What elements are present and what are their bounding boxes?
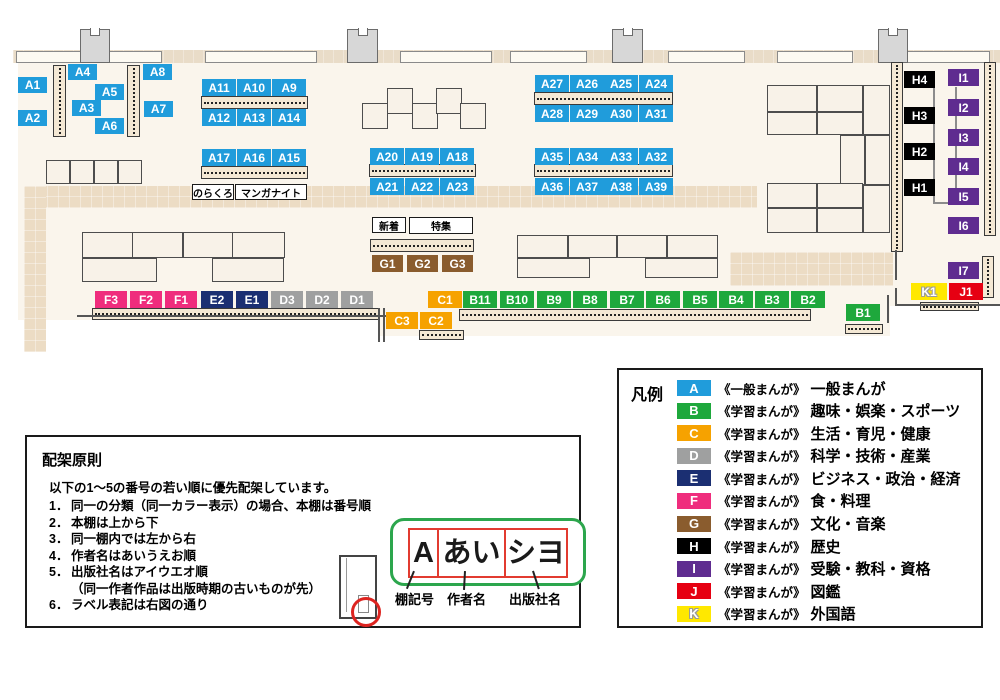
shelf-label-A39: A39 xyxy=(639,178,673,195)
shelf-label-A31: A31 xyxy=(639,105,673,122)
table xyxy=(362,103,388,129)
map-tag: 新着 xyxy=(372,217,406,233)
shelf-label-A1: A1 xyxy=(18,77,47,93)
shelf-label-A17: A17 xyxy=(202,149,236,166)
shelf-label-A26: A26 xyxy=(570,75,604,92)
table xyxy=(667,235,718,258)
principles-item: 1．同一の分類（同一カラー表示）の場合、本棚は番号順 xyxy=(49,498,394,515)
legend-item-list: A《一般まんが》一般まんがB《学習まんが》趣味・娯楽・スポーツC《学習まんが》生… xyxy=(677,380,961,629)
table xyxy=(118,160,142,184)
shelf-label-A22: A22 xyxy=(405,178,439,195)
shelf-label-B5: B5 xyxy=(683,291,717,308)
wall-line xyxy=(887,295,889,323)
legend-item-D: D《学習まんが》科学・技術・産業 xyxy=(677,448,961,464)
principles-item-number: 1． xyxy=(49,498,71,515)
bookshelf xyxy=(370,239,474,252)
bookshelf xyxy=(534,92,673,105)
shelf-label-A29: A29 xyxy=(570,105,604,122)
table xyxy=(82,232,133,258)
wall-window xyxy=(906,51,990,63)
wall-window xyxy=(777,51,853,63)
principles-item-number: 2． xyxy=(49,515,71,532)
shelf-label-A4: A4 xyxy=(68,64,97,80)
shelf-label-A2: A2 xyxy=(18,110,47,126)
principles-item-text: 本棚は上から下 xyxy=(71,515,159,532)
bookshelf xyxy=(369,164,476,177)
shelf-label-A12: A12 xyxy=(202,109,236,126)
bookshelf xyxy=(845,324,883,334)
label-example-author: あい xyxy=(437,528,506,578)
legend-category: 一般まんが xyxy=(811,378,886,399)
principles-item-number: 6． xyxy=(49,597,71,614)
legend-item-H: H《学習まんが》歴史 xyxy=(677,538,961,554)
legend-chip-J: J xyxy=(677,583,711,599)
shelf-label-J1: J1 xyxy=(949,283,983,300)
floor-map-page: A1A2A3A4A5A6A7A8A11A10A9A12A13A14A17A16A… xyxy=(0,0,1000,700)
pillar-notch xyxy=(623,28,633,36)
legend-category: ビジネス・政治・経済 xyxy=(811,468,961,489)
callout-author: 作者名 xyxy=(447,589,486,608)
shelf-label-A30: A30 xyxy=(604,105,638,122)
wall-window xyxy=(510,51,587,63)
shelf-label-A19: A19 xyxy=(405,148,439,165)
principles-item-text: 出版社名はアイウエオ順 xyxy=(71,564,208,581)
shelf-label-B10: B10 xyxy=(500,291,534,308)
table xyxy=(863,85,890,135)
shelf-label-B1: B1 xyxy=(846,304,880,321)
shelf-label-B7: B7 xyxy=(610,291,644,308)
shelf-label-I1: I1 xyxy=(948,69,979,86)
table xyxy=(387,88,413,114)
shelf-label-A25: A25 xyxy=(604,75,638,92)
callout-shelf-code: 棚記号 xyxy=(395,589,434,608)
principles-item: 2．本棚は上から下 xyxy=(49,515,394,532)
principles-item: 3．同一棚内では左から右 xyxy=(49,531,394,548)
legend-category: 文化・音楽 xyxy=(811,513,886,534)
shelf-label-A7: A7 xyxy=(144,101,173,117)
principles-title: 配架原則 xyxy=(42,449,102,470)
legend-title: 凡例 xyxy=(631,381,663,405)
shelf-label-A24: A24 xyxy=(639,75,673,92)
shelf-label-B11: B11 xyxy=(463,291,497,308)
legend-category: 図鑑 xyxy=(811,581,841,602)
table xyxy=(183,232,233,258)
shelf-label-D2: D2 xyxy=(306,291,338,308)
legend-type: 《学習まんが》 xyxy=(718,559,806,578)
shelf-label-A10: A10 xyxy=(237,79,271,96)
walkway xyxy=(24,186,46,352)
pillar-notch xyxy=(358,28,368,36)
table xyxy=(817,112,863,135)
principles-item-number: 3． xyxy=(49,531,71,548)
wall-window xyxy=(205,51,317,63)
bookshelf xyxy=(891,62,903,252)
legend-type: 《学習まんが》 xyxy=(718,514,806,533)
shelf-label-D3: D3 xyxy=(271,291,303,308)
shelf-label-A15: A15 xyxy=(272,149,306,166)
legend-item-F: F《学習まんが》食・料理 xyxy=(677,493,961,509)
shelf-label-C3: C3 xyxy=(386,312,418,329)
bookshelf xyxy=(201,166,308,179)
wall-line xyxy=(895,250,897,280)
shelf-label-A35: A35 xyxy=(535,148,569,165)
legend-chip-C: C xyxy=(677,425,711,441)
shelf-label-I4: I4 xyxy=(948,158,979,175)
shelf-label-A3: A3 xyxy=(72,100,101,116)
principles-intro: 以下の1～5の番号の若い順に優先配架しています。 xyxy=(49,477,336,496)
shelf-label-B2: B2 xyxy=(791,291,825,308)
legend-item-C: C《学習まんが》生活・育児・健康 xyxy=(677,425,961,441)
legend-chip-A: A xyxy=(677,380,711,396)
wall-line xyxy=(378,308,380,342)
shelf-label-B3: B3 xyxy=(755,291,789,308)
legend-category: 食・料理 xyxy=(811,490,871,511)
bookshelf xyxy=(53,65,66,137)
table xyxy=(767,112,817,135)
legend-type: 《学習まんが》 xyxy=(718,491,806,510)
legend-category: 趣味・娯楽・スポーツ xyxy=(811,400,961,421)
shelf-label-A33: A33 xyxy=(604,148,638,165)
shelf-label-A16: A16 xyxy=(237,149,271,166)
pillar-notch xyxy=(90,28,100,36)
legend-chip-E: E xyxy=(677,470,711,486)
table xyxy=(817,183,863,208)
bookshelf xyxy=(984,62,996,236)
shelf-label-G3: G3 xyxy=(442,255,473,272)
label-example-publisher: シヨ xyxy=(504,528,568,578)
principles-item-text: 同一棚内では左から右 xyxy=(71,531,196,548)
shelf-label-A5: A5 xyxy=(95,84,124,100)
legend-category: 科学・技術・産業 xyxy=(811,445,931,466)
table xyxy=(817,208,863,233)
table xyxy=(767,85,817,112)
table xyxy=(865,135,890,185)
principles-item-number: 4． xyxy=(49,548,71,565)
principles-item-text: 作者名はあいうえお順 xyxy=(71,548,196,565)
map-tag: マンガナイト xyxy=(235,184,307,200)
shelf-label-F2: F2 xyxy=(130,291,162,308)
legend-chip-D: D xyxy=(677,448,711,464)
bookshelf xyxy=(127,65,140,137)
shelf-label-I6: I6 xyxy=(948,217,979,234)
table xyxy=(817,85,863,112)
table xyxy=(767,208,817,233)
shelf-label-A11: A11 xyxy=(202,79,236,96)
shelf-label-A27: A27 xyxy=(535,75,569,92)
shelf-label-A28: A28 xyxy=(535,105,569,122)
shelf-label-A14: A14 xyxy=(272,109,306,126)
legend-item-I: I《学習まんが》受験・教科・資格 xyxy=(677,561,961,577)
book-spine xyxy=(343,558,347,612)
bookshelf xyxy=(982,256,994,298)
map-tag: 特集 xyxy=(409,217,473,234)
shelf-label-G2: G2 xyxy=(407,255,438,272)
table xyxy=(46,160,70,184)
shelf-label-H1: H1 xyxy=(904,179,935,196)
legend-category: 受験・教科・資格 xyxy=(811,558,931,579)
shelf-label-A20: A20 xyxy=(370,148,404,165)
legend-item-K: K《学習まんが》外国語 xyxy=(677,606,961,622)
legend-chip-B: B xyxy=(677,403,711,419)
shelf-label-A32: A32 xyxy=(639,148,673,165)
table xyxy=(517,235,568,258)
table xyxy=(212,258,284,282)
principles-item-text: 同一の分類（同一カラー表示）の場合、本棚は番号順 xyxy=(71,498,371,515)
wall-line xyxy=(897,304,1000,306)
shelf-label-A34: A34 xyxy=(570,148,604,165)
shelf-label-H2: H2 xyxy=(904,143,935,160)
table xyxy=(840,135,865,185)
bookshelf xyxy=(534,164,673,177)
shelf-label-D1: D1 xyxy=(341,291,373,308)
principles-item-number: 5． xyxy=(49,564,71,581)
legend-category: 歴史 xyxy=(811,536,841,557)
shelf-label-F1: F1 xyxy=(165,291,197,308)
table xyxy=(94,160,118,184)
shelf-label-B9: B9 xyxy=(537,291,571,308)
bookshelf xyxy=(459,309,811,321)
pillar-notch xyxy=(888,28,898,36)
shelf-label-A8: A8 xyxy=(143,64,172,80)
legend-category: 生活・育児・健康 xyxy=(811,423,931,444)
shelf-label-C2: C2 xyxy=(420,312,452,329)
wall-line xyxy=(383,308,385,342)
legend-chip-G: G xyxy=(677,516,711,532)
shelf-label-K1: K1 xyxy=(911,283,947,300)
table xyxy=(517,258,590,278)
legend-category: 外国語 xyxy=(811,603,856,624)
shelf-label-B6: B6 xyxy=(646,291,680,308)
shelf-label-I5: I5 xyxy=(948,188,979,205)
legend-chip-F: F xyxy=(677,493,711,509)
shelf-label-H4: H4 xyxy=(904,71,935,88)
shelf-label-C1: C1 xyxy=(428,291,462,308)
shelf-label-I2: I2 xyxy=(948,99,979,116)
legend-chip-I: I xyxy=(677,561,711,577)
principles-item-text: ラベル表記は右図の通り xyxy=(71,597,209,614)
shelf-label-A38: A38 xyxy=(604,178,638,195)
shelf-label-H3: H3 xyxy=(904,107,935,124)
shelf-label-B4: B4 xyxy=(719,291,753,308)
shelf-label-A21: A21 xyxy=(370,178,404,195)
shelf-label-A13: A13 xyxy=(237,109,271,126)
shelf-label-A6: A6 xyxy=(95,118,124,134)
wall-line xyxy=(77,315,388,317)
legend-type: 《学習まんが》 xyxy=(718,446,806,465)
table xyxy=(132,232,183,258)
legend-chip-K: K xyxy=(677,606,711,622)
legend-item-G: G《学習まんが》文化・音楽 xyxy=(677,516,961,532)
map-tag: のらくろ xyxy=(192,184,234,200)
shelf-label-A37: A37 xyxy=(570,178,604,195)
shelf-label-F3: F3 xyxy=(95,291,127,308)
legend-item-B: B《学習まんが》趣味・娯楽・スポーツ xyxy=(677,403,961,419)
legend-box: 凡例 A《一般まんが》一般まんがB《学習まんが》趣味・娯楽・スポーツC《学習まん… xyxy=(617,368,983,628)
shelf-label-I3: I3 xyxy=(948,129,979,146)
label-highlight-circle xyxy=(351,597,381,627)
shelf-label-G1: G1 xyxy=(372,255,403,272)
table xyxy=(232,232,285,258)
shelf-label-A18: A18 xyxy=(440,148,474,165)
shelf-label-A36: A36 xyxy=(535,178,569,195)
table xyxy=(412,103,438,129)
table xyxy=(70,160,94,184)
wall-window xyxy=(400,51,492,63)
label-example-frame: A あい シヨ xyxy=(390,518,586,586)
table xyxy=(645,258,718,278)
legend-item-A: A《一般まんが》一般まんが xyxy=(677,380,961,396)
legend-type: 《学習まんが》 xyxy=(718,537,806,556)
callout-publisher: 出版社名 xyxy=(509,589,561,608)
table xyxy=(617,235,667,258)
table xyxy=(767,183,817,208)
legend-type: 《学習まんが》 xyxy=(718,401,806,420)
table xyxy=(82,258,157,282)
table xyxy=(460,103,486,129)
shelf-label-B8: B8 xyxy=(573,291,607,308)
wall-line xyxy=(895,288,897,306)
table xyxy=(568,235,617,258)
legend-item-J: J《学習まんが》図鑑 xyxy=(677,583,961,599)
legend-item-E: E《学習まんが》ビジネス・政治・経済 xyxy=(677,470,961,486)
shelf-label-E2: E2 xyxy=(201,291,233,308)
shelf-label-A9: A9 xyxy=(272,79,306,96)
shelf-label-A23: A23 xyxy=(440,178,474,195)
shelf-label-I7: I7 xyxy=(948,262,979,279)
legend-type: 《学習まんが》 xyxy=(718,424,806,443)
legend-type: 《学習まんが》 xyxy=(718,604,806,623)
legend-type: 《一般まんが》 xyxy=(718,379,806,398)
table xyxy=(863,185,890,233)
wall-window xyxy=(668,51,745,63)
table xyxy=(436,88,462,114)
principles-box: 配架原則 以下の1～5の番号の若い順に優先配架しています。 1．同一の分類（同一… xyxy=(25,435,581,628)
bookshelf xyxy=(201,96,308,109)
legend-type: 《学習まんが》 xyxy=(718,582,806,601)
bookshelf xyxy=(92,308,379,320)
shelf-label-E1: E1 xyxy=(236,291,268,308)
principles-item-text: （同一作者作品は出版時期の古いものが先） xyxy=(71,581,321,598)
walkway xyxy=(730,252,893,286)
legend-type: 《学習まんが》 xyxy=(718,469,806,488)
legend-chip-H: H xyxy=(677,538,711,554)
bookshelf xyxy=(419,330,464,340)
